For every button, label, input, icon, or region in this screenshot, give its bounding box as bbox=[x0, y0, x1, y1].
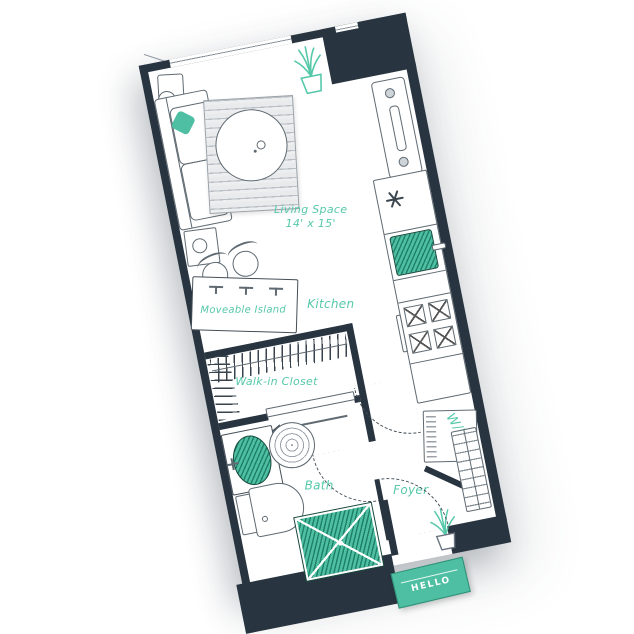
cabinet-knob-icon bbox=[398, 156, 410, 168]
living-space-label: Living Space 14' x 15' bbox=[256, 203, 366, 231]
kitchen-label: Kitchen bbox=[307, 297, 354, 312]
island-tick bbox=[209, 286, 223, 288]
living-space-name: Living Space bbox=[256, 203, 366, 217]
table-detail-dot bbox=[253, 149, 257, 153]
floor-plan-image: Living Space 14' x 15' Moveable Island bbox=[0, 0, 634, 634]
disposal-asterisk-icon bbox=[384, 189, 405, 210]
washer-stripes bbox=[426, 413, 437, 457]
kitchen-sink bbox=[389, 229, 439, 277]
cabinet-knob-icon bbox=[384, 87, 396, 99]
island-label: Moveable Island bbox=[200, 305, 286, 318]
living-space-size: 14' x 15' bbox=[256, 217, 366, 231]
island-tick bbox=[239, 287, 253, 289]
window-living bbox=[168, 35, 293, 68]
table-detail-icon bbox=[256, 140, 267, 151]
kitchen-door-arc bbox=[354, 377, 421, 444]
cabinet-handle-icon bbox=[389, 105, 408, 152]
bath-label: Bath bbox=[305, 479, 334, 494]
closet-label: Walk-in Closet bbox=[235, 375, 317, 389]
wall-closet-foyer bbox=[345, 323, 375, 442]
stove bbox=[400, 295, 462, 360]
wall-column-top-right bbox=[321, 13, 416, 85]
welcome-mat: HELLO bbox=[391, 557, 471, 609]
shower-drain bbox=[338, 540, 344, 546]
island-tick bbox=[269, 287, 283, 289]
moveable-island: Moveable Island bbox=[191, 276, 299, 333]
side-table-lamp-icon bbox=[191, 237, 208, 254]
floor-plan: Living Space 14' x 15' Moveable Island bbox=[139, 13, 512, 596]
